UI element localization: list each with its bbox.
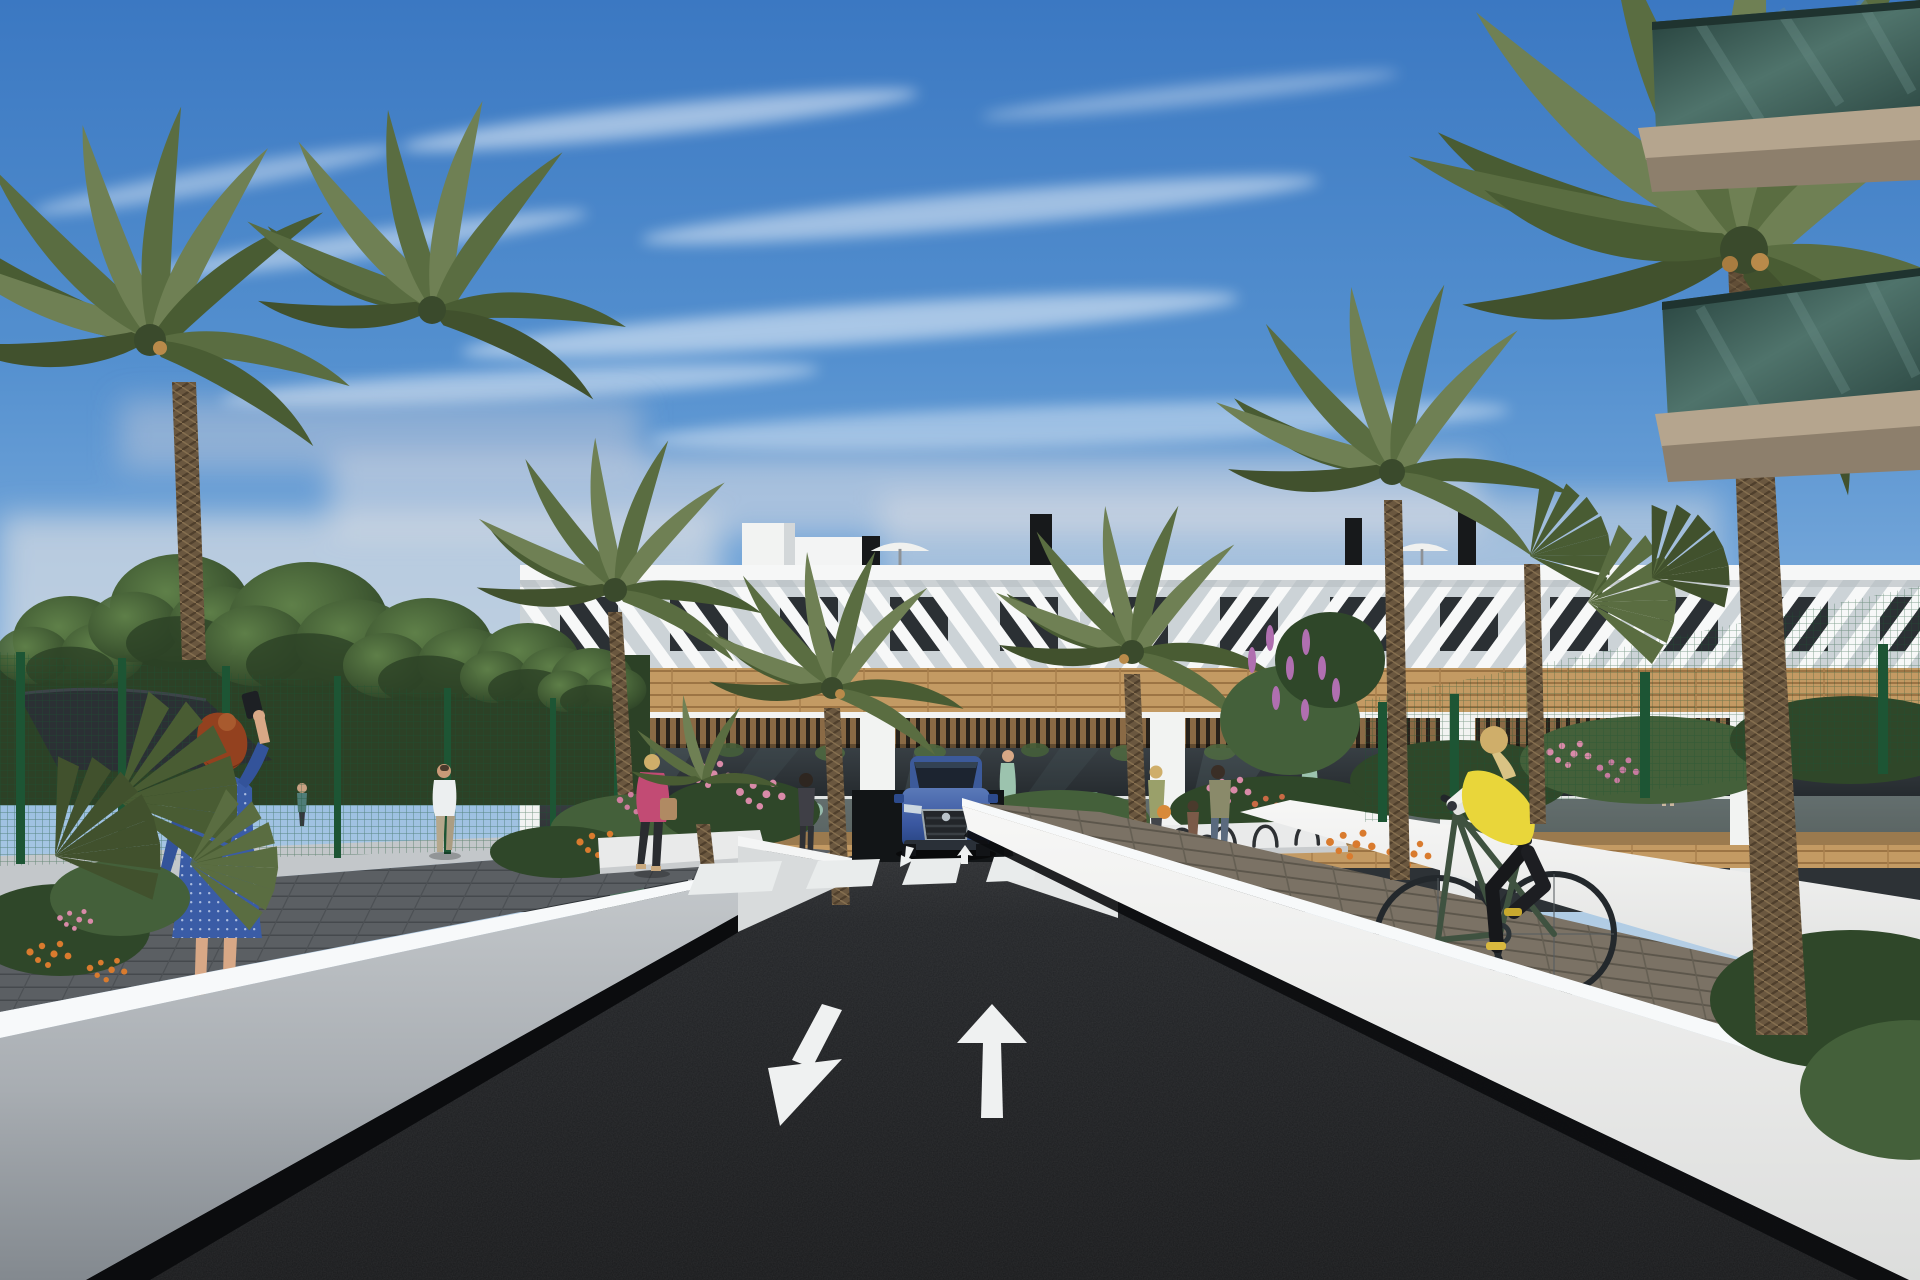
- balcony-unit-upper: [1638, 0, 1920, 192]
- scene-svg: [0, 0, 1920, 1280]
- hand: [253, 710, 265, 722]
- shoe: [1486, 942, 1506, 950]
- orange-bag: [1157, 805, 1171, 819]
- handbag: [660, 798, 677, 820]
- car-mirror: [988, 794, 998, 803]
- car-mirror: [894, 794, 904, 803]
- cyclist-head: [1480, 726, 1508, 754]
- balcony-figure-head: [1002, 750, 1014, 762]
- balcony-unit-lower: [1655, 268, 1920, 482]
- hand: [1447, 801, 1457, 811]
- car-badge: [942, 813, 950, 821]
- render-canvas: [0, 0, 1920, 1280]
- hair-highlight: [218, 713, 236, 731]
- roof-tower-shade: [784, 523, 795, 571]
- shoe: [1504, 908, 1522, 916]
